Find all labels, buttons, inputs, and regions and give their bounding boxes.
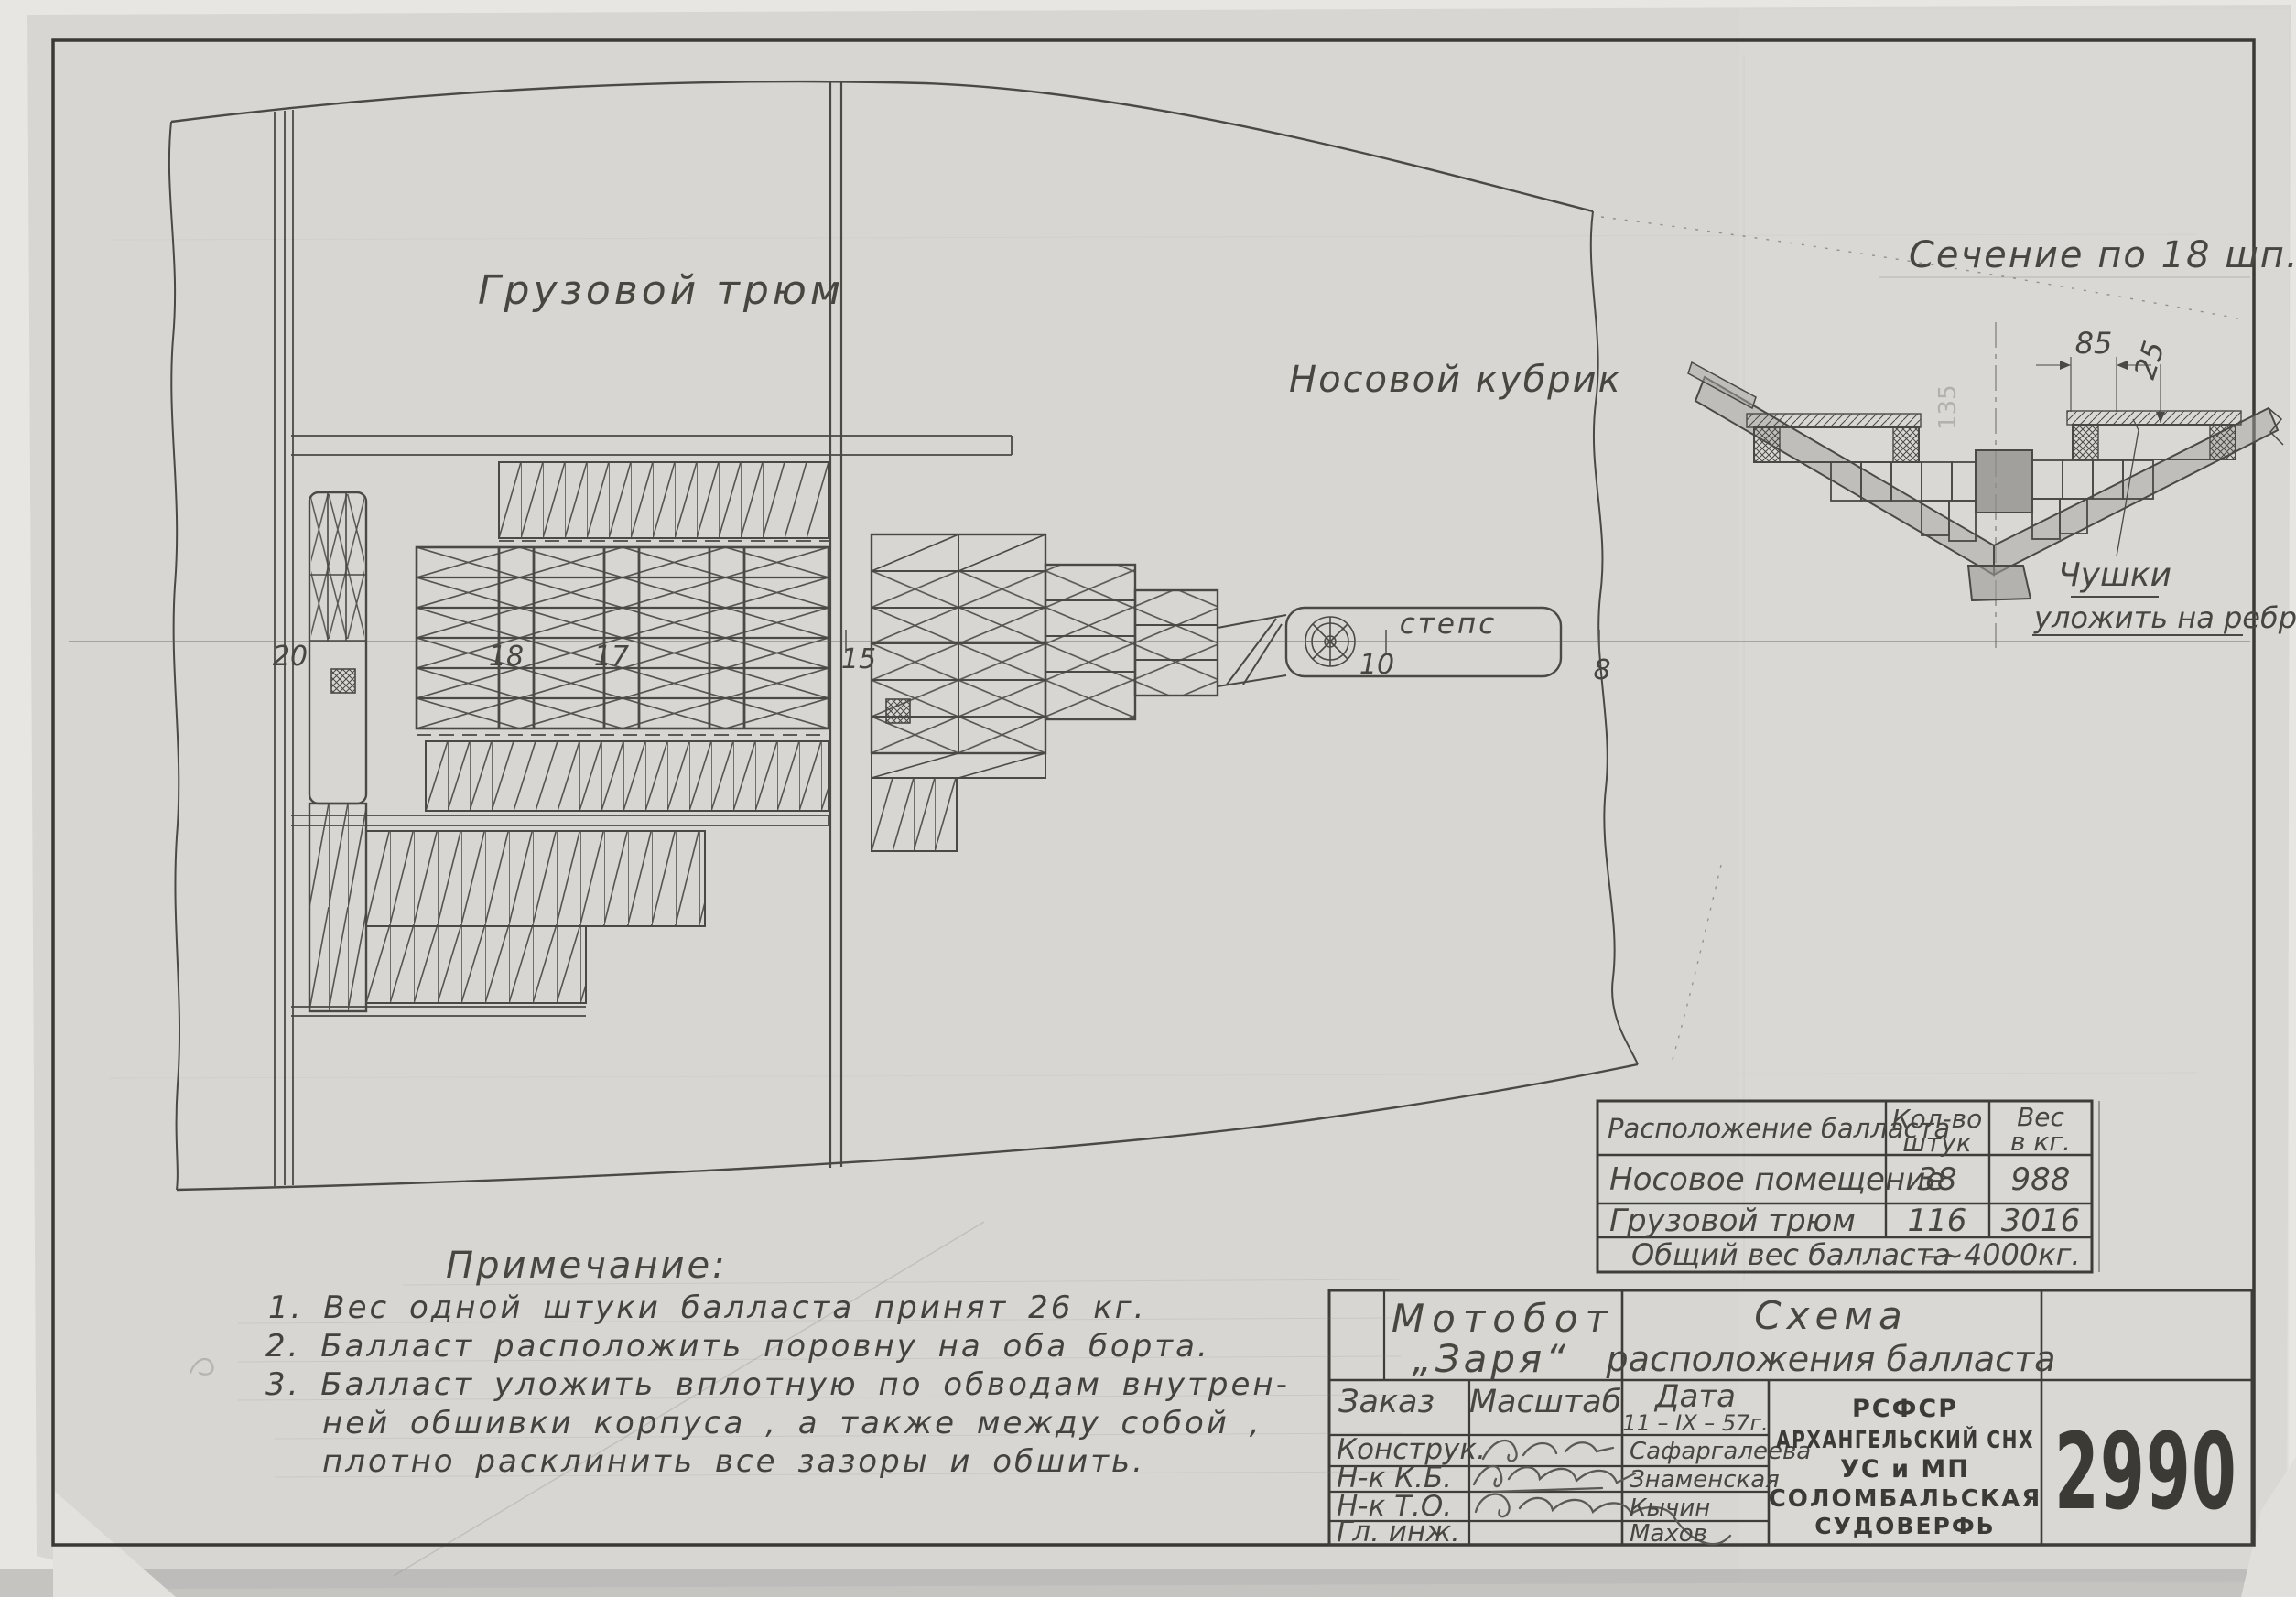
scanned-blueprint: Грузовой трюм Носовой кубрик Сечение по … <box>0 0 2296 1597</box>
mast-step-label: степс <box>1400 608 1498 641</box>
note-line-3c: плотно расклинить все зазоры и обшить. <box>322 1443 1145 1480</box>
note-line-3a: 3. Балласт уложить вплотную по обводам в… <box>265 1366 1290 1403</box>
note-line-2: 2. Балласт расположить поровну на оба бо… <box>265 1328 1210 1365</box>
chushki-label: Чушки <box>2058 556 2171 594</box>
table-total-value: –~4000кг. <box>1924 1237 2081 1272</box>
org-line-2: АРХАНГЕЛЬСКИЙ СНХ <box>1776 1425 2034 1454</box>
dim-85-text: 85 <box>2075 326 2113 361</box>
drawing-number: 2990 <box>2054 1411 2237 1534</box>
chushki-label-2: уложить на ребро <box>2033 600 2296 635</box>
frame-10: 10 <box>1359 649 1394 681</box>
org-line-4: СОЛОМБАЛЬСКАЯ <box>1769 1485 2042 1513</box>
note-line-1: 1. Вес одной штуки балласта принят 26 кг… <box>268 1289 1146 1326</box>
name-2: Знаменская <box>1630 1466 1780 1494</box>
table-row2-weight: 3016 <box>2001 1203 2081 1239</box>
name-3: Кычин <box>1630 1494 1710 1522</box>
table-col-wt-2: в кг. <box>2010 1127 2071 1157</box>
org-line-3: УС и МП <box>1840 1455 1970 1484</box>
keel-shoe <box>1968 566 2031 600</box>
role-4: Гл. инж. <box>1337 1516 1460 1548</box>
frame-15: 15 <box>841 643 876 675</box>
bow-lower-band <box>872 778 957 851</box>
table-row1-qty: 38 <box>1917 1161 1956 1198</box>
table-total-label: Общий вес балласта <box>1631 1237 1951 1272</box>
table-row2-location: Грузовой трюм <box>1609 1203 1856 1239</box>
date-value: 11 – IX – 57г. <box>1622 1410 1768 1436</box>
vessel-name-1: Мотобот <box>1392 1296 1615 1341</box>
bow-cabin-label: Носовой кубрик <box>1289 359 1622 401</box>
table-row2-qty: 116 <box>1908 1203 1967 1239</box>
vessel-name-2: „Заря“ <box>1412 1336 1569 1381</box>
frame-20: 20 <box>273 641 308 673</box>
lower-band-1 <box>366 831 705 926</box>
order-label: Заказ <box>1338 1384 1435 1420</box>
scale-label: Масштаб <box>1469 1384 1621 1420</box>
pump-well-square <box>331 669 355 693</box>
drawing-title-1: Схема <box>1754 1293 1907 1338</box>
bow-well-square <box>886 699 910 723</box>
lower-band-2 <box>366 926 586 1003</box>
drawing-sheet: Грузовой трюм Носовой кубрик Сечение по … <box>0 0 2296 1597</box>
name-4: Махов <box>1630 1520 1707 1548</box>
side-ballast-band-bottom <box>426 741 829 811</box>
frame-18: 18 <box>489 641 524 673</box>
drawing-title-2: расположения балласта <box>1606 1339 2056 1379</box>
notes-title: Примечание: <box>446 1245 728 1287</box>
table-col-qty-2: штук <box>1902 1128 1972 1158</box>
date-label: Дата <box>1653 1378 1736 1415</box>
note-line-3b: ней обшивки корпуса , а также между собо… <box>322 1405 1262 1441</box>
pencil-dim-text: 135 <box>1934 384 1962 430</box>
port-column-hatch <box>311 494 364 639</box>
section-title: Сечение по 18 шп. <box>1909 234 2296 276</box>
org-line-5: СУДОВЕРФЬ <box>1814 1513 1995 1539</box>
cargo-hold-label: Грузовой трюм <box>478 267 844 314</box>
frame-8: 8 <box>1593 654 1610 686</box>
table-row1-weight: 988 <box>2011 1161 2071 1198</box>
table-row1-location: Носовое помещение <box>1609 1161 1944 1198</box>
side-ballast-band-top <box>499 462 829 538</box>
org-line-1: РСФСР <box>1852 1395 1958 1423</box>
frame-17: 17 <box>594 641 629 673</box>
bow-block-right <box>1135 590 1218 696</box>
port-column-lower <box>309 804 366 1011</box>
